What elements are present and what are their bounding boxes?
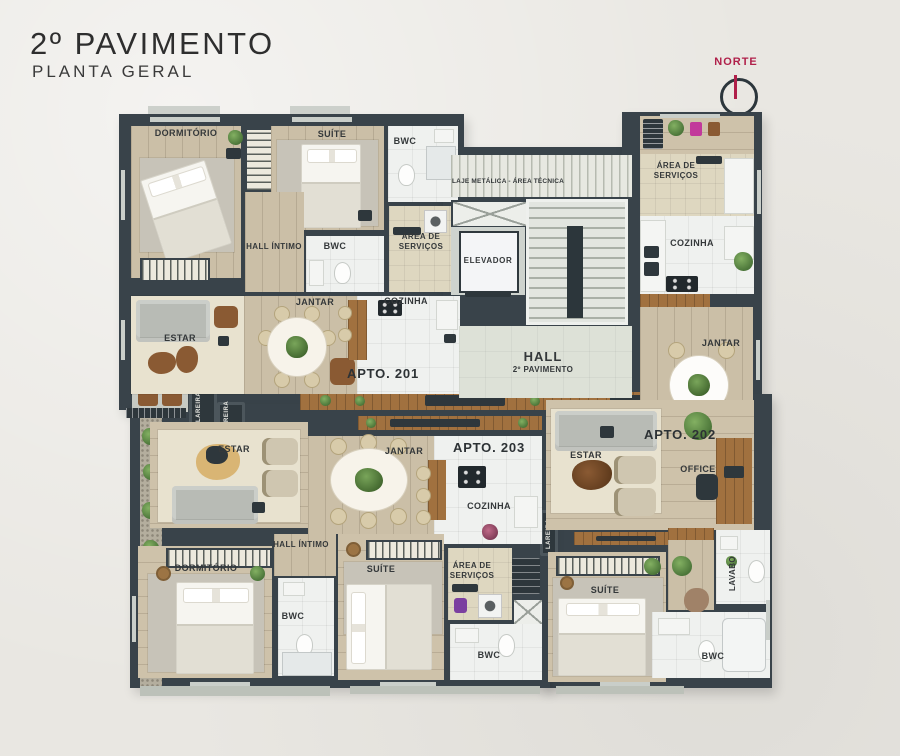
sidewalk-apron (140, 686, 330, 696)
side-table (600, 426, 614, 438)
window (757, 170, 761, 214)
label-estar-201: ESTAR (150, 333, 210, 344)
window (121, 320, 125, 360)
washer-icon (643, 119, 663, 149)
washer-icon (424, 210, 447, 233)
flowers (482, 524, 498, 540)
basket (346, 542, 361, 557)
window (766, 600, 770, 640)
plant (644, 558, 661, 575)
label-estar-202: ESTAR (556, 450, 616, 461)
label-cozinha-202: COZINHA (657, 238, 727, 249)
armchair (614, 488, 656, 516)
stool (416, 488, 431, 503)
label-suite-202: SUÍTE (575, 585, 635, 596)
dining-table (330, 448, 408, 512)
north-compass-icon (720, 78, 758, 116)
decor-rug (690, 122, 702, 136)
stool (338, 328, 352, 342)
sidewalk-apron (556, 686, 684, 694)
dining-chair (360, 512, 377, 529)
window (756, 340, 760, 380)
kitchen-island (428, 460, 446, 520)
window (150, 117, 220, 122)
balcony-plant (320, 395, 331, 406)
shaft-vent (451, 200, 529, 228)
laundry-basket (454, 598, 467, 613)
bathtub (722, 618, 766, 672)
washer-icon (478, 594, 502, 618)
window (292, 117, 352, 122)
plant (734, 252, 753, 271)
label-bwc-suite-203: BWC (459, 650, 519, 661)
shaft-vent (512, 598, 544, 626)
label-servicos-201: ÁREA DE SERVIÇOS (390, 232, 452, 251)
plant (668, 120, 684, 136)
stool (416, 510, 431, 525)
label-hall: HALL (493, 349, 593, 365)
label-apto-201: APTO. 201 (333, 366, 433, 382)
oven (644, 262, 659, 276)
basket (560, 576, 574, 590)
bed (301, 144, 361, 228)
dining-chair (390, 508, 407, 525)
label-lavabo-202: LAVABO (728, 546, 738, 602)
closet-hatch (245, 128, 273, 192)
north-label: NORTE (706, 56, 766, 68)
shower (282, 652, 332, 676)
office-desk (716, 438, 752, 524)
wardrobe (668, 528, 714, 540)
bench (358, 210, 372, 221)
bar-counter (640, 294, 710, 307)
dining-chair (668, 342, 685, 359)
entry-apron (290, 106, 350, 114)
toilet (748, 560, 765, 583)
label-jantar-202: JANTAR (691, 338, 751, 349)
page-subtitle: PLANTA GERAL (32, 62, 194, 82)
armchair (262, 470, 298, 497)
label-apto-203: APTO. 203 (439, 440, 539, 456)
balcony-plant (518, 418, 528, 428)
bed (346, 584, 432, 670)
label-suite-203: SUÍTE (351, 564, 411, 575)
sink (444, 334, 456, 343)
label-hall-intimo-203: HALL ÍNTIMO (273, 540, 329, 550)
shelf-rack (512, 558, 540, 594)
label-dormitorio-203: DORMITÓRIO (156, 563, 256, 574)
window (121, 170, 125, 220)
label-estar-203: ESTAR (204, 444, 264, 455)
entry-apron (148, 106, 220, 114)
label-servicos-203: ÁREA DE SERVIÇOS (440, 561, 504, 580)
label-suite-201: SUÍTE (292, 129, 372, 140)
label-dormitorio-201: DORMITÓRIO (136, 128, 236, 139)
north-needle-icon (734, 75, 737, 99)
label-office-202: OFFICE (668, 464, 728, 475)
dining-table (267, 317, 327, 377)
sink-counter (283, 582, 305, 596)
sink-counter (309, 260, 324, 286)
label-cozinha-203: COZINHA (454, 501, 524, 512)
dining-chair (330, 438, 347, 455)
bench-slats (126, 408, 186, 418)
sofa (172, 486, 258, 524)
balcony-plant (366, 418, 376, 428)
label-hall-sub: 2º PAVIMENTO (483, 365, 603, 375)
fireplace-label: LAREIRA (196, 394, 203, 422)
window (660, 114, 720, 118)
armchair (614, 456, 656, 484)
technical-area-slab (451, 155, 632, 197)
balcony-plant (355, 396, 365, 406)
window (132, 596, 136, 642)
armchair (214, 306, 238, 328)
page-title: 2º PAVIMENTO (30, 26, 275, 62)
sink-counter (658, 618, 690, 635)
stove-icon (458, 466, 486, 488)
tv (596, 536, 656, 541)
side-table (218, 336, 229, 346)
bench (452, 584, 478, 592)
toilet (398, 164, 415, 186)
wardrobe-hatch (366, 540, 442, 560)
balcony-bench (390, 419, 480, 427)
stair-rail (567, 226, 583, 318)
label-laje-metalica: LAJE METÁLICA - ÁREA TÉCNICA (452, 178, 582, 186)
wardrobe-hatch (140, 258, 210, 282)
label-bwc-202: BWC (683, 651, 743, 662)
label-bwc-suite-201: BWC (385, 136, 425, 147)
label-jantar-203: JANTAR (374, 446, 434, 457)
label-servicos-202: ÁREA DE SERVIÇOS (642, 161, 710, 180)
sink-counter (434, 129, 454, 143)
laundry-counter (724, 158, 754, 214)
bed (558, 598, 646, 676)
stool (338, 306, 352, 320)
label-elevador: ELEVADOR (451, 256, 525, 266)
floor-plan-page: 2º PAVIMENTO PLANTA GERAL NORTE LAREIRA … (0, 0, 900, 756)
stove-icon (666, 276, 698, 292)
stool (416, 466, 431, 481)
label-cozinha-201: COZINHA (371, 296, 441, 307)
bed (176, 582, 254, 674)
dining-chair (330, 508, 347, 525)
label-apto-202: APTO. 202 (630, 427, 730, 443)
nightstand (226, 148, 241, 159)
office-chair (696, 474, 718, 500)
sidewalk-apron (350, 686, 540, 694)
side-table (252, 502, 265, 513)
label-bwc-201: BWC (315, 241, 355, 252)
plant (672, 556, 692, 576)
elevator-doors (465, 291, 511, 297)
sink-counter (455, 628, 479, 643)
label-bwc-203: BWC (273, 611, 313, 622)
armchair (262, 438, 298, 465)
label-jantar-201: JANTAR (285, 297, 345, 308)
label-hall-intimo-201: HALL ÍNTIMO (246, 242, 302, 252)
decor-box (708, 122, 720, 136)
toilet (334, 262, 351, 284)
